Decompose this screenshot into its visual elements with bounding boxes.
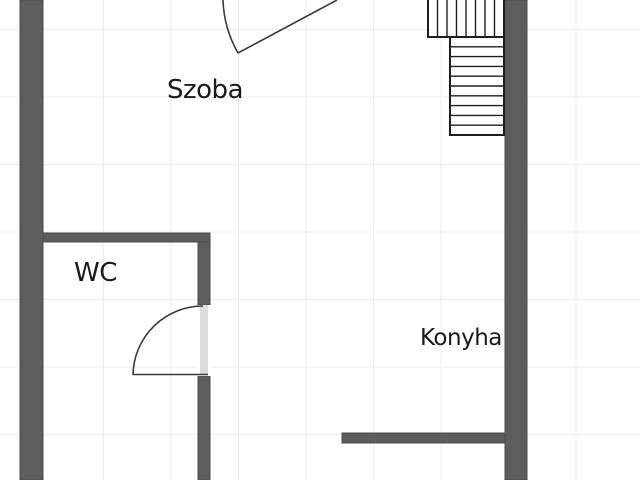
door-wc-swing-arc [133, 306, 203, 375]
wall-wc-right-upper [198, 242, 210, 305]
room-label-wc: WC [74, 259, 117, 288]
room-label-szoba: Szoba [167, 76, 243, 105]
wall-kitchen [342, 433, 505, 443]
wall-wc-top [43, 233, 210, 242]
floorplan-drawing [0, 0, 640, 480]
door-szoba-leaf [238, 0, 337, 53]
floorplan-canvas: Szoba WC Konyha [0, 0, 640, 480]
wall-right [505, 0, 527, 480]
wall-left [20, 0, 43, 480]
wall-wc-right-lower [198, 376, 210, 480]
door-wc-panel [200, 305, 208, 375]
door-szoba-swing-arc [223, 0, 238, 53]
room-label-konyha: Konyha [420, 326, 502, 351]
